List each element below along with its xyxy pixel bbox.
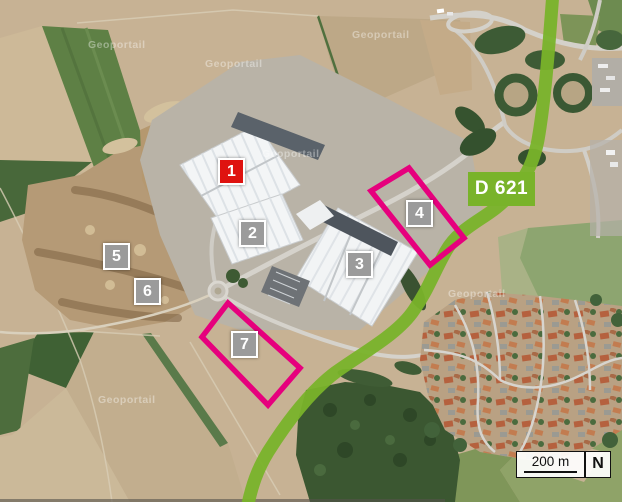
- aerial-map: Geoportail Geoportail Geoportail Geoport…: [0, 0, 622, 502]
- watermark-text: Geoportail: [352, 29, 410, 41]
- watermark-text: Geoportail: [262, 148, 320, 160]
- watermark-text: Geoportail: [98, 394, 156, 406]
- aerial-basemap: Geoportail Geoportail Geoportail Geoport…: [0, 0, 622, 502]
- watermark-text: Geoportail: [205, 58, 263, 70]
- watermark-text: Geoportail: [88, 39, 146, 51]
- watermark-text: Geoportail: [448, 288, 506, 300]
